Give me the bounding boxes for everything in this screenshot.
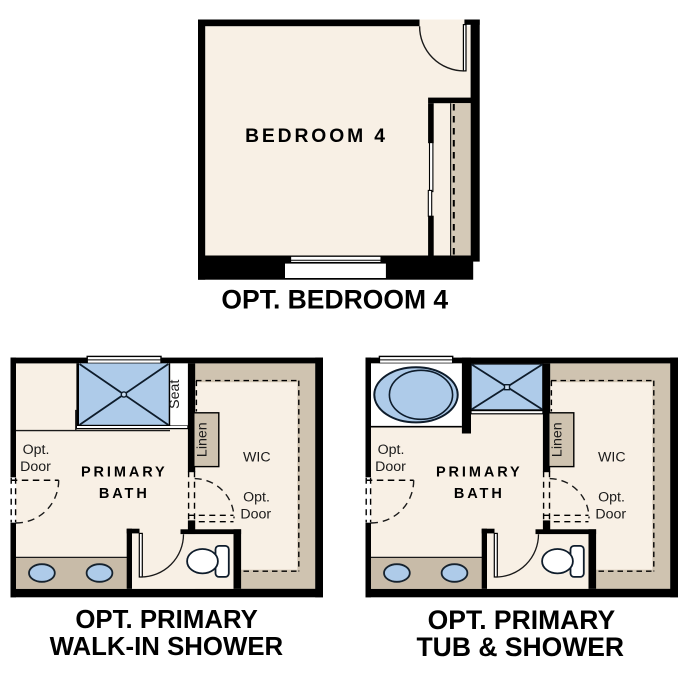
svg-text:WIC: WIC xyxy=(243,450,271,466)
svg-text:OPT. BEDROOM 4: OPT. BEDROOM 4 xyxy=(221,285,448,315)
svg-text:BEDROOM 4: BEDROOM 4 xyxy=(245,126,388,147)
svg-text:Opt.: Opt. xyxy=(243,489,270,505)
svg-text:BATH: BATH xyxy=(454,486,505,502)
svg-text:Opt.: Opt. xyxy=(23,442,50,458)
svg-text:TUB & SHOWER: TUB & SHOWER xyxy=(417,632,625,662)
svg-text:Door: Door xyxy=(240,506,271,522)
svg-text:Opt.: Opt. xyxy=(598,489,625,505)
svg-text:BATH: BATH xyxy=(99,486,150,502)
svg-text:Opt.: Opt. xyxy=(378,442,405,458)
svg-text:Linen: Linen xyxy=(195,422,211,457)
svg-text:Door: Door xyxy=(595,506,626,522)
svg-text:Door: Door xyxy=(20,459,51,475)
svg-text:PRIMARY: PRIMARY xyxy=(81,464,168,480)
svg-text:OPT. PRIMARY: OPT. PRIMARY xyxy=(75,606,258,634)
svg-text:Seat: Seat xyxy=(167,380,183,409)
svg-text:WIC: WIC xyxy=(598,450,626,466)
svg-text:Linen: Linen xyxy=(550,422,566,457)
svg-text:OPT. PRIMARY: OPT. PRIMARY xyxy=(428,605,616,635)
svg-text:WALK-IN SHOWER: WALK-IN SHOWER xyxy=(50,633,284,661)
svg-text:Door: Door xyxy=(375,459,406,475)
svg-text:PRIMARY: PRIMARY xyxy=(436,464,523,480)
